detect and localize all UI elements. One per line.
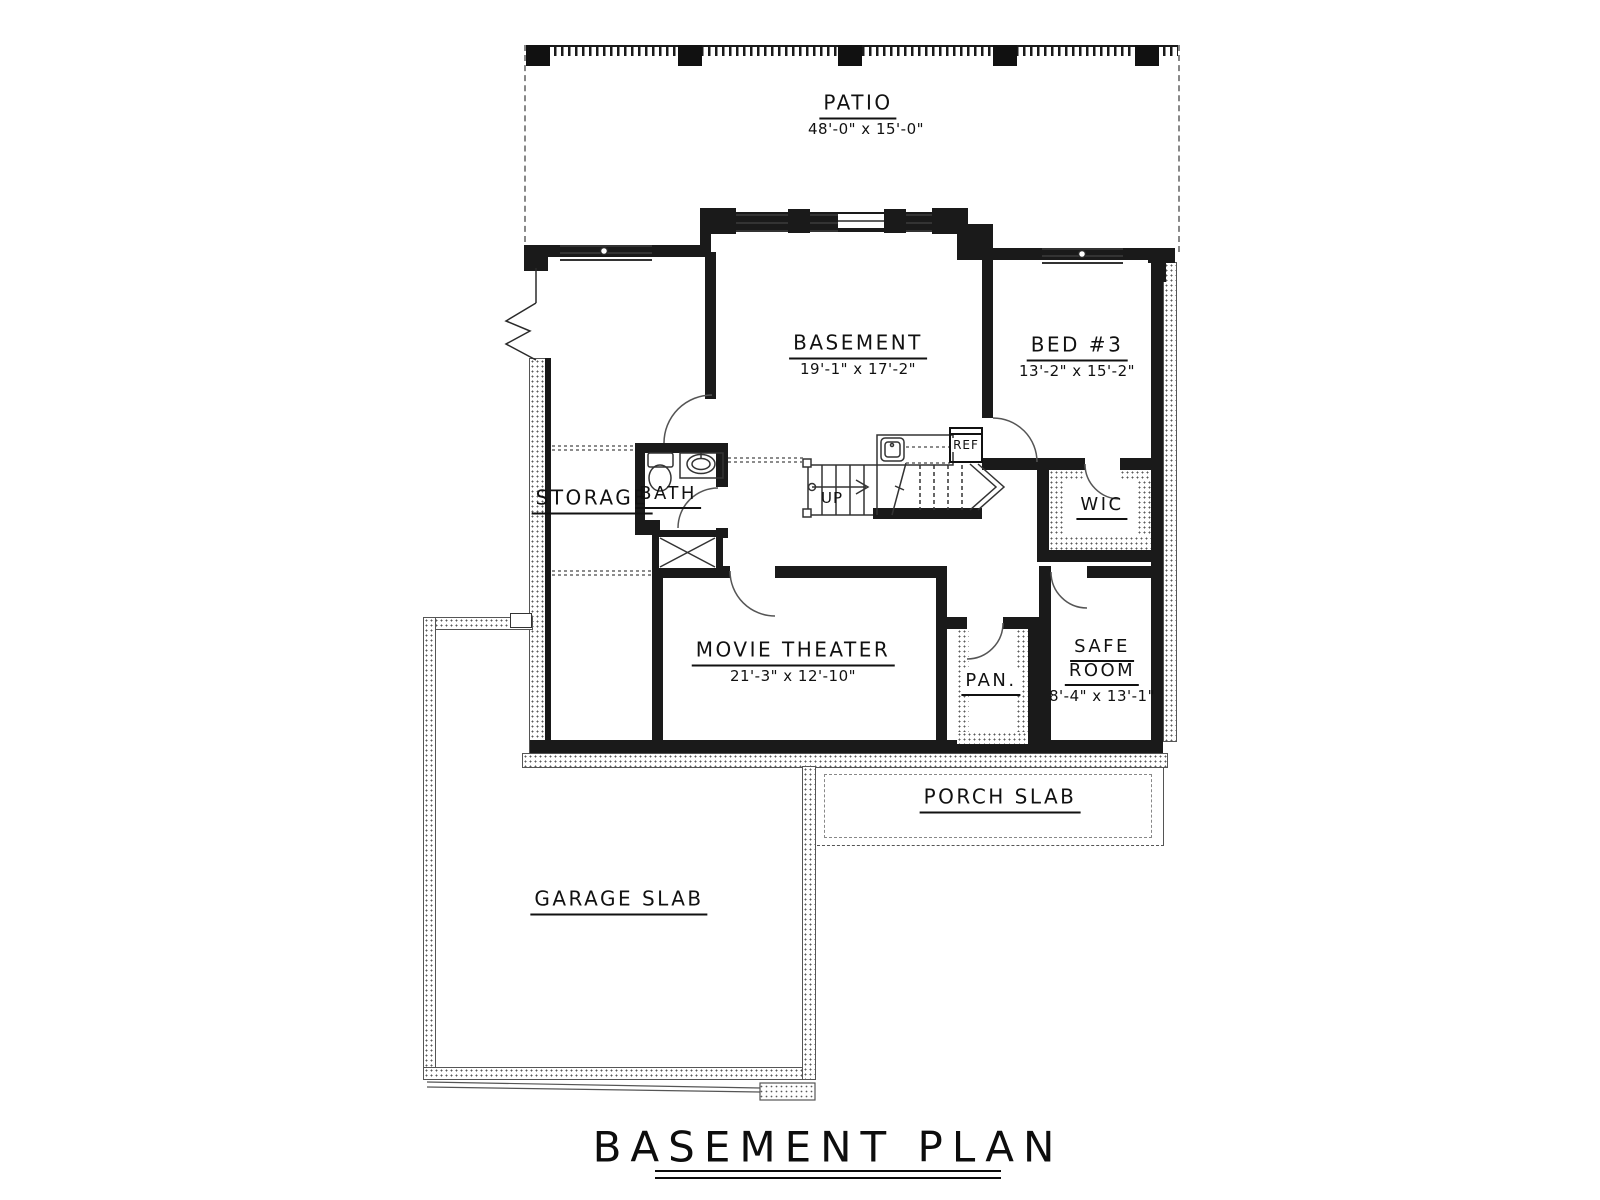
garage-slab-edge-left [423, 617, 436, 1080]
basement-label: BASEMENT [789, 331, 927, 360]
theater-north-wall-right [775, 566, 947, 578]
storage-window [560, 245, 652, 261]
pantry-door-arc [967, 623, 1003, 659]
wall-break-icon [506, 303, 536, 360]
safe-room-west-wall [1039, 566, 1051, 753]
safe-room-label-line1: SAFE [1070, 636, 1134, 662]
bottom-foundation-band [522, 753, 1168, 768]
pantry-label: PAN. [961, 670, 1020, 696]
basement-north-door-cut [838, 214, 884, 228]
safe-room-label-line2: ROOM [1065, 660, 1139, 686]
stairs-up-label: UP [821, 489, 843, 507]
wic-west-wall [1037, 458, 1049, 562]
basement-window [736, 214, 788, 232]
bed3-door-arc [993, 418, 1037, 462]
movie-theater-label: MOVIE THEATER [692, 638, 895, 667]
theater-east-wall [936, 578, 947, 753]
bar-sink-icon [881, 438, 904, 461]
bottom-exterior-wall [530, 740, 1163, 753]
left-wall-footing-tick [510, 613, 532, 628]
safe-room-door-arc [1051, 572, 1087, 608]
basement-floor-plan: PATIO 48'-0" x 15'-0" BASEMENT 19'-1" x … [0, 0, 1600, 1200]
theater-door-arc [730, 571, 775, 616]
patio-post [993, 45, 1017, 66]
basement-north-post [884, 209, 906, 233]
stairs-south-wall [873, 508, 982, 519]
nw-corner-block [524, 245, 548, 271]
basement-storage-divider [982, 228, 993, 418]
bath-label: BATH [635, 483, 701, 509]
theater-west-wall [652, 566, 663, 753]
right-foundation-band [1163, 262, 1177, 742]
bath-north-wall [635, 443, 728, 453]
safe-room-dims: 8'-4" x 13'-1" [1049, 687, 1155, 705]
basement-west-divider [705, 252, 716, 399]
bed3-label: BED #3 [1027, 333, 1128, 362]
hall-bed3-wall [982, 458, 1085, 470]
basement-north-post [788, 209, 810, 233]
left-exterior-wall-face [545, 358, 551, 753]
wic-concrete-lining-top-right [1120, 470, 1151, 480]
garage-slab-edge-right [802, 766, 816, 1080]
right-exterior-wall [1151, 260, 1163, 742]
wic-concrete-lining-bottom [1049, 536, 1151, 550]
bed3-dims: 13'-2" x 15'-2" [1019, 362, 1135, 380]
storage-door-arc [664, 395, 712, 443]
linen-closet-interior [659, 537, 716, 568]
bar-counter [877, 435, 953, 465]
garage-apron [427, 1082, 815, 1100]
safe-room-north-wall [1087, 566, 1151, 578]
garage-slab-edge-bottom [423, 1067, 816, 1080]
pantry-north-wall [947, 617, 967, 629]
bed3-window [1042, 248, 1123, 264]
patio-post [838, 45, 862, 66]
garage-slab-label: GARAGE SLAB [530, 887, 707, 916]
sheet-title: BASEMENT PLAN [593, 1123, 1064, 1172]
basement-west-stub [700, 212, 711, 257]
patio-label: PATIO [819, 91, 896, 120]
movie-theater-dims: 21'-3" x 12'-10" [730, 667, 856, 685]
patio-dims: 48'-0" x 15'-0" [808, 120, 924, 138]
patio-post [678, 45, 702, 66]
sheet-title-underline [655, 1170, 1001, 1179]
patio-post [526, 45, 550, 66]
pantry-concrete-lining-bottom [957, 732, 1028, 744]
bath-east-wall-upper [716, 443, 728, 487]
stair-break-icon [970, 464, 1004, 510]
wic-concrete-lining-top-left [1049, 470, 1085, 480]
porch-slab-label: PORCH SLAB [920, 785, 1081, 814]
basement-dims: 19'-1" x 17'-2" [800, 360, 916, 378]
wic-north-wall-right [1120, 458, 1163, 470]
patio-post [1135, 45, 1159, 66]
basement-window [810, 214, 838, 232]
pantry-east-wall [1028, 617, 1039, 753]
wic-south-wall [1037, 550, 1163, 562]
basement-window [906, 214, 932, 232]
wic-label: WIC [1076, 494, 1127, 520]
fridge-label: REF [952, 438, 980, 452]
